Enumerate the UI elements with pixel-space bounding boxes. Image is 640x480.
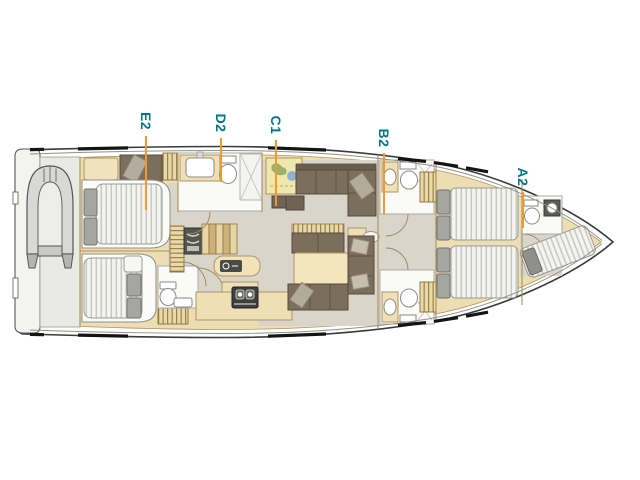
leader-line-e2 bbox=[145, 136, 147, 210]
stove bbox=[232, 287, 258, 308]
chart-table bbox=[214, 256, 260, 276]
leader-line-a2 bbox=[522, 192, 524, 228]
fore-cabin-port bbox=[437, 188, 518, 240]
salon bbox=[286, 164, 379, 310]
floorplan-canvas: E2 D2 C1 B2 A2 bbox=[0, 0, 640, 480]
label-b2: B2 bbox=[376, 123, 392, 153]
label-a2: A2 bbox=[515, 162, 531, 192]
dinghy bbox=[27, 166, 73, 268]
label-e2: E2 bbox=[138, 106, 154, 136]
stairs bbox=[202, 224, 237, 254]
leader-line-b2 bbox=[383, 153, 385, 214]
locker-fore-port bbox=[420, 172, 436, 202]
leader-line-d2 bbox=[220, 138, 222, 182]
label-d2: D2 bbox=[213, 108, 229, 138]
yacht-floorplan-svg bbox=[0, 0, 640, 480]
locker-fore-starboard bbox=[420, 282, 436, 312]
label-c1: C1 bbox=[268, 110, 284, 140]
engine-console bbox=[184, 228, 202, 254]
salon-table bbox=[294, 253, 348, 284]
leader-line-c1 bbox=[275, 140, 277, 206]
fore-cabin-starboard bbox=[437, 246, 518, 298]
